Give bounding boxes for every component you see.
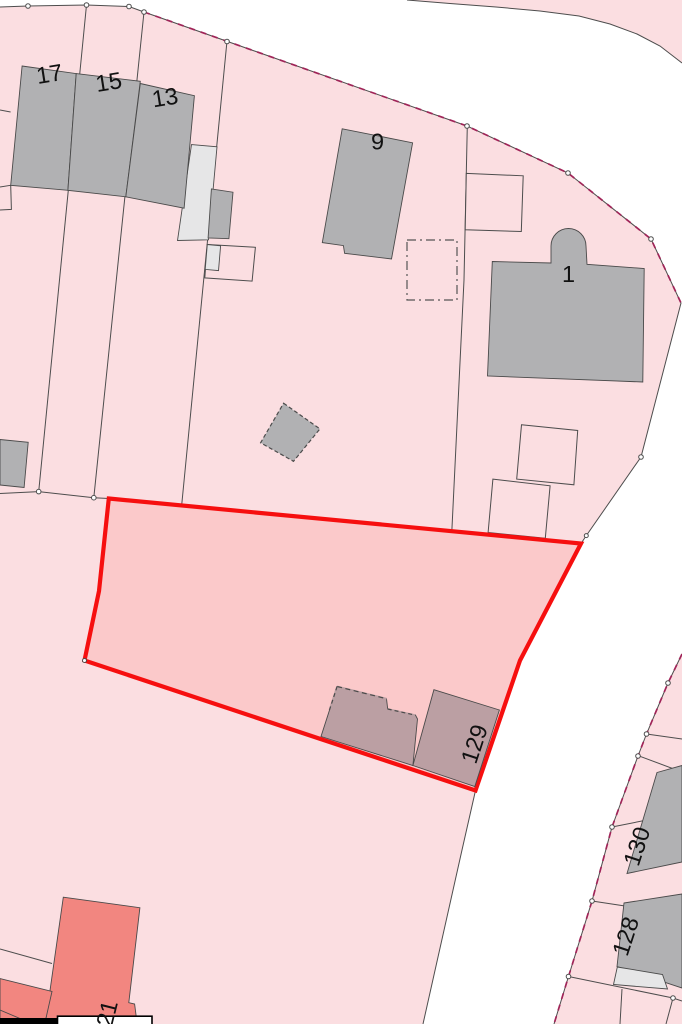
svg-text:17: 17: [35, 59, 65, 89]
svg-text:9: 9: [371, 129, 384, 155]
svg-text:13: 13: [150, 83, 180, 113]
svg-text:15: 15: [94, 67, 124, 97]
svg-text:1: 1: [562, 261, 575, 287]
